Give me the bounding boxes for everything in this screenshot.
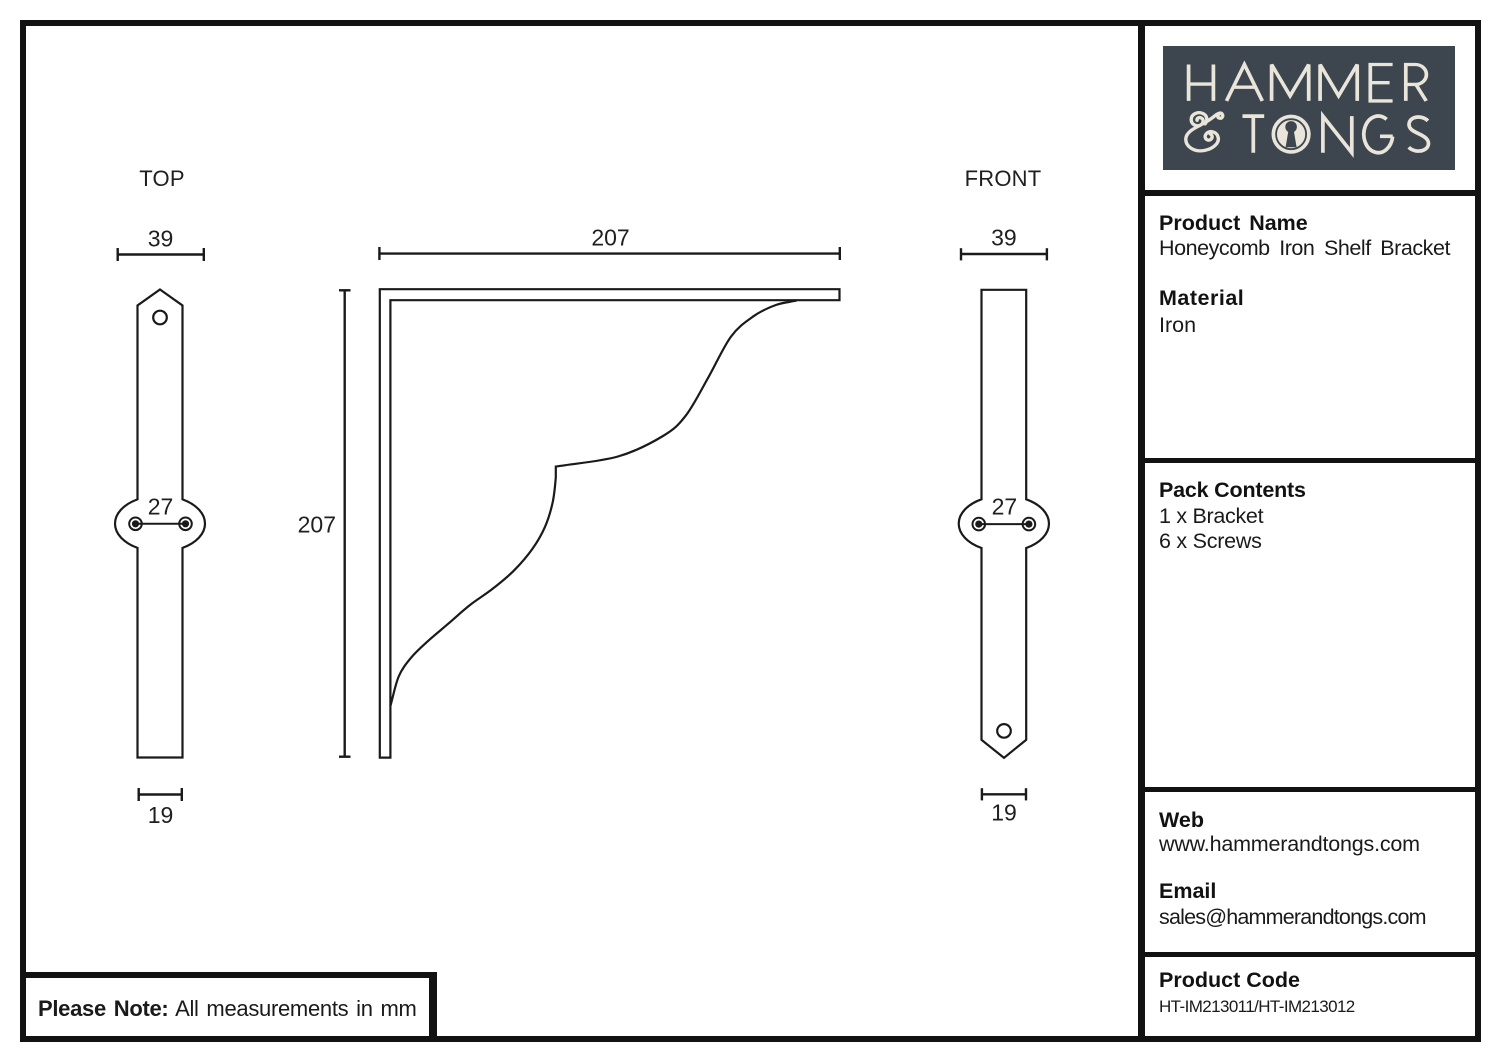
svg-text:39: 39: [991, 225, 1017, 251]
svg-text:207: 207: [298, 512, 336, 538]
svg-text:27: 27: [992, 494, 1018, 520]
svg-text:39: 39: [148, 226, 174, 252]
svg-text:207: 207: [591, 225, 629, 251]
svg-text:TOP: TOP: [139, 166, 184, 191]
svg-text:FRONT: FRONT: [965, 166, 1042, 191]
svg-text:19: 19: [991, 800, 1017, 826]
svg-text:19: 19: [148, 802, 174, 828]
svg-text:27: 27: [148, 494, 174, 520]
